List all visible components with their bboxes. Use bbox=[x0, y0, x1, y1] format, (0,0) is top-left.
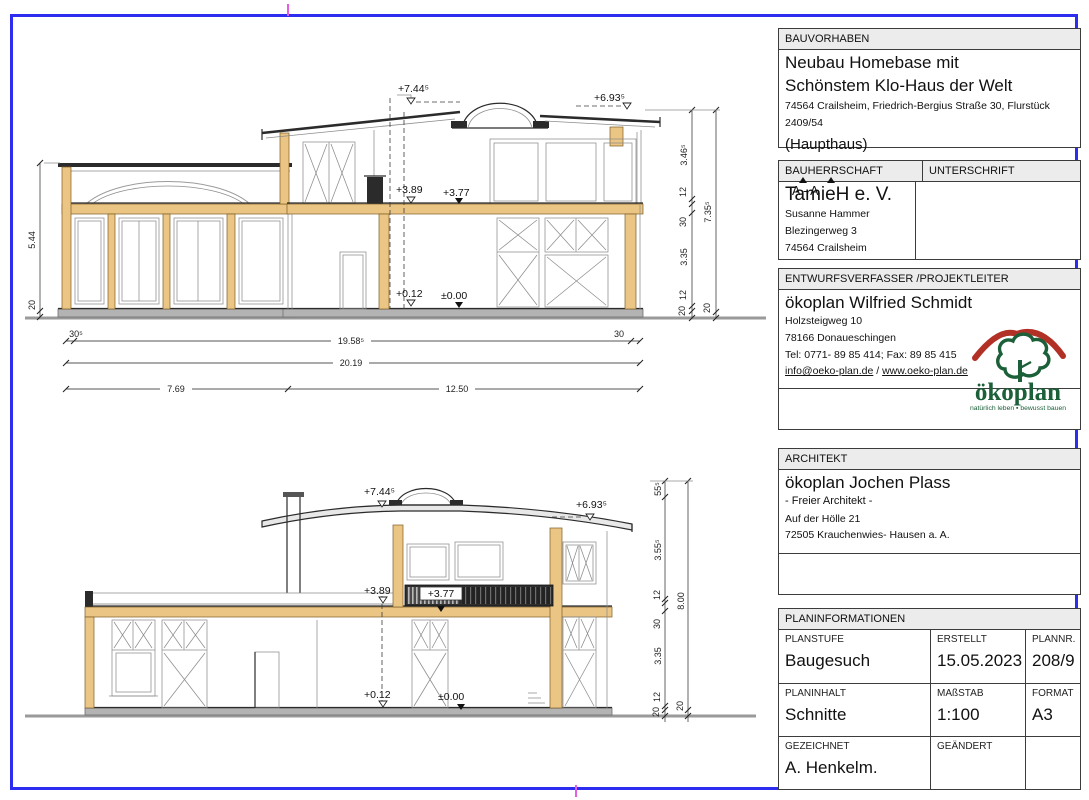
oekoplan-logo-icon: ökoplan natürlich leben ▪ bewusst bauen bbox=[959, 318, 1077, 414]
bottom-dimensions: 55⁵ 3.55⁵ 12 30 3.35 12 20 8.00 20 bbox=[650, 478, 693, 722]
level-label: +3.77 bbox=[428, 588, 455, 600]
top-right-block bbox=[262, 98, 660, 309]
unterschrift-header: UNTERSCHRIFT bbox=[923, 161, 1080, 181]
top-left-wing bbox=[58, 163, 292, 309]
section-mark-label: A - A bbox=[792, 184, 818, 198]
dim-label: 30⁵ bbox=[69, 329, 83, 339]
level-label: ±0.00 bbox=[438, 691, 464, 703]
dim-label: 20 bbox=[27, 300, 37, 310]
level-label: +3.89 bbox=[396, 184, 423, 196]
project-title-line1: Neubau Homebase mit bbox=[779, 50, 1080, 73]
dim-label: 12 bbox=[678, 187, 688, 197]
top-dimensions: 5.44 20 30⁵ 19.58⁵ 30 20.19 7.69 bbox=[27, 107, 720, 394]
dim-label: 8.00 bbox=[676, 592, 686, 610]
architect-line: 72505 Krauchenwies- Hausen a. A. bbox=[779, 527, 1080, 544]
planinfo-cell-massstab: MAßSTAB 1:100 bbox=[931, 683, 1026, 736]
planinfo-value: Schnitte bbox=[779, 699, 930, 725]
project-title-line2: Schönstem Klo-Haus der Welt bbox=[779, 73, 1080, 96]
project-note: (Haupthaus) bbox=[779, 132, 1080, 153]
planinfo-cell-planstufe: PLANSTUFE Baugesuch bbox=[779, 630, 931, 683]
dim-label: 30 bbox=[652, 619, 662, 629]
dim-label: 12 bbox=[652, 692, 662, 702]
dim-label: 55⁵ bbox=[653, 482, 663, 496]
dim-label: 3.55⁵ bbox=[653, 539, 663, 561]
planinfo-value: 208/9 bbox=[1026, 645, 1081, 671]
oekoplan-logo-tagline: natürlich leben ▪ bewusst bauen bbox=[970, 405, 1066, 412]
stove-section bbox=[367, 177, 383, 204]
dim-label: 12 bbox=[652, 590, 662, 600]
project-address: 74564 Crailsheim, Friedrich-Bergius Stra… bbox=[779, 96, 1080, 132]
bauherrschaft-box: BAUHERRSCHAFT UNTERSCHRIFT TamieH e. V. … bbox=[778, 160, 1081, 260]
level-label: +7.44⁵ bbox=[364, 486, 395, 498]
planinfo-value bbox=[931, 752, 1025, 758]
level-label: +0.12 bbox=[364, 689, 391, 701]
signature-cell bbox=[916, 182, 1080, 260]
section-drawings: +7.44⁵ +6.93⁵ +3.89 +3.77 +0.12 ±0.00 5.… bbox=[0, 0, 775, 800]
planinfo-label: ERSTELLT bbox=[931, 630, 1025, 645]
level-label: +6.93⁵ bbox=[594, 92, 625, 104]
dim-label: 30 bbox=[678, 217, 688, 227]
dim-label: 7.69 bbox=[167, 384, 185, 394]
dim-label: 20 bbox=[702, 303, 712, 313]
planinfo-cell-empty bbox=[1026, 736, 1081, 790]
level-label: +6.93⁵ bbox=[576, 499, 607, 511]
dim-label: 3.35 bbox=[679, 248, 689, 266]
architekt-header: ARCHITEKT bbox=[779, 449, 1080, 470]
dim-label: 20 bbox=[675, 701, 685, 711]
designer-email-link[interactable]: info@oeko-plan.de bbox=[785, 365, 873, 377]
dim-label: 20.19 bbox=[340, 358, 363, 368]
level-label: +7.44⁵ bbox=[398, 83, 429, 95]
client-contact-line: 74564 Crailsheim bbox=[779, 240, 915, 257]
dim-label: 20 bbox=[651, 707, 661, 717]
entwurfsverfasser-header: ENTWURFSVERFASSER /PROJEKTLEITER bbox=[779, 269, 1080, 290]
planinfo-label: PLANINHALT bbox=[779, 684, 930, 699]
designer-website-link[interactable]: www.oeko-plan.de bbox=[882, 365, 968, 377]
section-cut-marker bbox=[827, 177, 835, 183]
chimney-cap bbox=[283, 492, 304, 497]
bottom-section-drawing: +7.44⁵ +6.93⁵ +3.89 +3.77 +0.12 ±0.00 55… bbox=[25, 478, 756, 722]
architect-line: Auf der Hölle 21 bbox=[779, 511, 1080, 528]
architect-line: - Freier Architekt - bbox=[779, 493, 1080, 511]
planinfo-cell-plannr: PLANNR. 208/9 bbox=[1026, 630, 1081, 683]
oekoplan-logo: ökoplan natürlich leben ▪ bewusst bauen bbox=[959, 318, 1077, 414]
dim-label: 7.35⁵ bbox=[703, 201, 713, 223]
client-contact-line: Blezingerweg 3 bbox=[779, 223, 915, 240]
oekoplan-logo-wordmark: ökoplan bbox=[975, 379, 1061, 406]
planinfo-value: A3 bbox=[1026, 699, 1081, 725]
dim-label: 3.46⁵ bbox=[679, 144, 689, 166]
planinformationen-box: PLANINFORMATIONEN PLANSTUFE Baugesuch ER… bbox=[778, 608, 1081, 790]
bauvorhaben-box: BAUVORHABEN Neubau Homebase mit Schönste… bbox=[778, 28, 1081, 148]
planinfo-cell-format: FORMAT A3 bbox=[1026, 683, 1081, 736]
planinfo-cell-erstellt: ERSTELLT 15.05.2023 bbox=[931, 630, 1026, 683]
architekt-box: ARCHITEKT ökoplan Jochen Plass - Freier … bbox=[778, 448, 1081, 595]
link-separator: / bbox=[873, 365, 882, 377]
dim-label: 19.58⁵ bbox=[338, 336, 365, 346]
planinfo-value: Baugesuch bbox=[779, 645, 930, 671]
level-label: +0.12 bbox=[396, 288, 423, 300]
dim-label: 20 bbox=[677, 306, 687, 316]
planinformationen-header: PLANINFORMATIONEN bbox=[779, 609, 1080, 630]
dim-label: 3.35 bbox=[653, 647, 663, 665]
planinfo-cell-geaendert: GEÄNDERT bbox=[931, 736, 1026, 790]
planinfo-value: 15.05.2023 bbox=[931, 645, 1025, 671]
dim-label: 12 bbox=[678, 290, 688, 300]
planinfo-cell-gezeichnet: GEZEICHNET A. Henkelm. bbox=[779, 736, 931, 790]
architekt-empty-cell bbox=[779, 553, 1080, 591]
designer-name: ökoplan Wilfried Schmidt bbox=[779, 290, 1080, 313]
planinfo-value: A. Henkelm. bbox=[779, 752, 930, 778]
section-cut-marker bbox=[799, 177, 807, 183]
client-contact-line: Susanne Hammer bbox=[779, 206, 915, 223]
entwurfsverfasser-box: ENTWURFSVERFASSER /PROJEKTLEITER ökoplan… bbox=[778, 268, 1081, 430]
planinfo-label: FORMAT bbox=[1026, 684, 1081, 699]
planinfo-value: 1:100 bbox=[931, 699, 1025, 725]
plan-sheet: { "page": { "border_color": "#2d2df2", "… bbox=[0, 0, 1089, 800]
top-section-drawing: +7.44⁵ +6.93⁵ +3.89 +3.77 +0.12 ±0.00 5.… bbox=[25, 83, 766, 394]
planinfo-label: GEZEICHNET bbox=[779, 737, 930, 752]
bauvorhaben-header: BAUVORHABEN bbox=[779, 29, 1080, 50]
bottom-left-wing bbox=[85, 591, 612, 708]
level-label: ±0.00 bbox=[441, 290, 467, 302]
dim-label: 12.50 bbox=[446, 384, 469, 394]
level-label: +3.77 bbox=[443, 187, 470, 199]
dim-label: 5.44 bbox=[27, 231, 37, 249]
planinfo-label: GEÄNDERT bbox=[931, 737, 1025, 752]
dim-label: 30 bbox=[614, 329, 624, 339]
architect-name: ökoplan Jochen Plass bbox=[779, 470, 1080, 493]
level-label: +3.89 bbox=[364, 585, 391, 597]
planinfo-cell-planinhalt: PLANINHALT Schnitte bbox=[779, 683, 931, 736]
planinfo-label: MAßSTAB bbox=[931, 684, 1025, 699]
planinfo-label: PLANSTUFE bbox=[779, 630, 930, 645]
planinfo-label: PLANNR. bbox=[1026, 630, 1081, 645]
